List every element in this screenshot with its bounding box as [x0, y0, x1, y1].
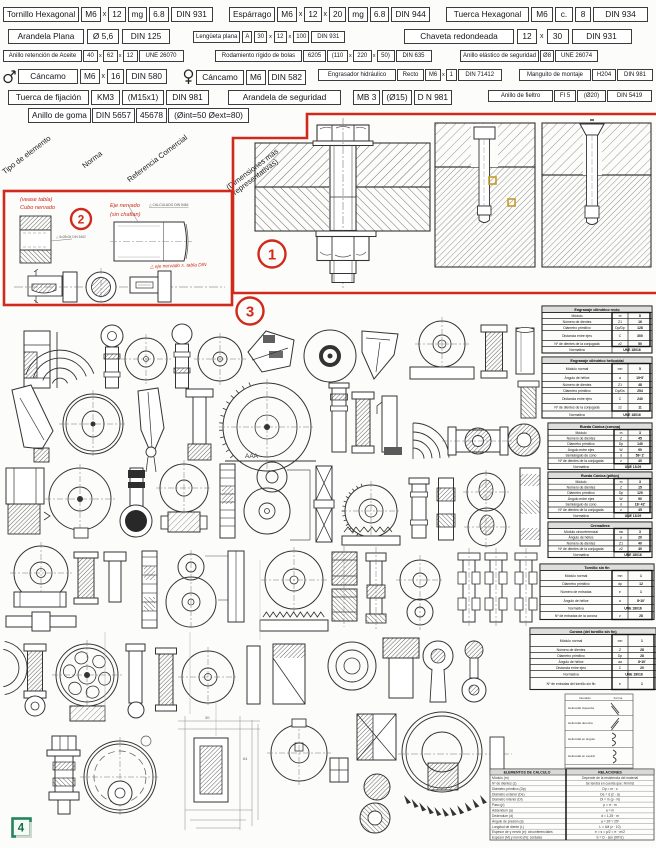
svg-text:Paso (p): Paso (p): [492, 803, 504, 807]
svg-text:(vease tabla): (vease tabla): [20, 197, 52, 203]
svg-text:Diámetro primitivo: Diámetro primitivo: [567, 491, 594, 495]
svg-text:50: 50: [638, 342, 642, 346]
svg-text:Número de dientes: Número de dientes: [563, 383, 592, 387]
svg-text:dp: dp: [618, 582, 622, 586]
svg-text:Z: Z: [620, 485, 622, 489]
svg-text:Semiángulo de cono: Semiángulo de cono: [566, 454, 597, 458]
svg-text:m: m: [620, 431, 623, 435]
svg-text:Normativa: Normativa: [569, 348, 585, 352]
svg-text:254: 254: [637, 389, 643, 393]
svg-text:Dp: Dp: [619, 491, 623, 495]
svg-text:Longitud de diente (L): Longitud de diente (L): [492, 825, 524, 829]
svg-text:Módulo: Módulo: [575, 480, 586, 484]
svg-text:Engranaje cilíndrico helicoida: Engranaje cilíndrico helicoidal: [570, 359, 623, 363]
svg-text:16: 16: [638, 320, 642, 324]
svg-text:1: 1: [641, 639, 643, 643]
svg-text:Engranaje cilíndrico recto: Engranaje cilíndrico recto: [574, 308, 620, 312]
svg-text:Normativa: Normativa: [569, 413, 585, 417]
svg-text:Número de dientes: Número de dientes: [557, 648, 586, 652]
svg-text:m: m: [619, 314, 622, 318]
svg-text:mc: mc: [619, 530, 624, 534]
svg-text:Normativa: Normativa: [573, 465, 589, 469]
svg-text:Módulo circunferencial: Módulo circunferencial: [564, 530, 598, 534]
svg-text:Dp = m · z: Dp = m · z: [602, 787, 618, 791]
svg-text:4: 4: [18, 823, 25, 835]
svg-text:45: 45: [638, 436, 642, 440]
svg-text:3: 3: [639, 530, 641, 534]
svg-text:z2: z2: [619, 547, 623, 551]
svg-text:Addendum (a): Addendum (a): [492, 809, 513, 813]
svg-text:Nº de entradas de la corona: Nº de entradas de la corona: [555, 614, 597, 618]
svg-text:Normativa: Normativa: [568, 606, 584, 610]
svg-text:Diámetro primitivo: Diámetro primitivo: [563, 326, 590, 330]
svg-text:18º 42': 18º 42': [635, 503, 646, 507]
svg-text:8º10': 8º10': [637, 599, 645, 603]
svg-text:Corona (del tornillo sin fin): Corona (del tornillo sin fin): [569, 630, 617, 634]
svg-text:1: 1: [640, 574, 642, 578]
svg-text:Nº de dientes de la conjugada: Nº de dientes de la conjugada: [558, 547, 603, 551]
svg-text:Z1: Z1: [618, 383, 622, 387]
svg-text:Z: Z: [620, 436, 622, 440]
svg-text:Helicoidal en ángulo: Helicoidal en ángulo: [568, 737, 595, 741]
svg-text:a: a: [619, 376, 621, 380]
svg-text:Ángulo de hélice: Ángulo de hélice: [563, 599, 588, 603]
svg-text:a: a: [619, 599, 621, 603]
svg-text:Eje nervado: Eje nervado: [110, 203, 140, 209]
svg-text:11: 11: [638, 406, 642, 410]
svg-text:d = 1,25 · m: d = 1,25 · m: [601, 814, 619, 818]
svg-text:Se tendrá en cuenta que: N/mm2: Se tendrá en cuenta que: N/mm2: [586, 781, 635, 785]
svg-text:z: z: [620, 459, 622, 463]
svg-text:45: 45: [638, 508, 642, 512]
svg-text:e: e: [619, 590, 621, 594]
svg-text:Nº de dientes de la conjugada: Nº de dientes de la conjugada: [554, 342, 599, 346]
svg-text:90: 90: [638, 497, 642, 501]
svg-text:Dentado: Dentado: [579, 696, 591, 700]
svg-text:Di = m (p · N): Di = m (p · N): [600, 798, 620, 802]
svg-text:Normativa: Normativa: [563, 672, 579, 676]
svg-text:Helicoidal izquierda: Helicoidal izquierda: [568, 706, 594, 710]
svg-text:8º10': 8º10': [638, 660, 646, 664]
svg-text:m: m: [620, 480, 623, 484]
svg-text:3: 3: [246, 303, 254, 320]
svg-text:mn: mn: [618, 574, 623, 578]
svg-text:UNE 18.09: UNE 18.09: [625, 465, 642, 469]
svg-text:d: d: [620, 503, 622, 507]
svg-text:Dp/Dp: Dp/Dp: [615, 326, 625, 330]
svg-text:Módulo normal: Módulo normal: [566, 367, 589, 371]
svg-text:Diámetro primitivo: Diámetro primitivo: [567, 442, 594, 446]
svg-text:140: 140: [637, 442, 643, 446]
svg-text:28: 28: [640, 654, 644, 658]
svg-text:28: 28: [639, 614, 643, 618]
svg-text:a = 20º / 25º: a = 20º / 25º: [601, 819, 620, 823]
svg-text:Diámetro primitivo: Diámetro primitivo: [563, 389, 590, 393]
svg-text:Ángulo de hélice: Ángulo de hélice: [564, 376, 589, 380]
svg-text:Distancia entre ejes: Distancia entre ejes: [562, 397, 592, 401]
svg-text:a = m: a = m: [606, 809, 615, 813]
svg-text:Nº de dientes de la conjugada: Nº de dientes de la conjugada: [558, 459, 603, 463]
svg-text:Diámetro primitivo (Dp): Diámetro primitivo (Dp): [492, 787, 526, 791]
svg-text:Cubo nervado: Cubo nervado: [20, 205, 55, 211]
svg-text:Nº de dientes (z): Nº de dientes (z): [492, 781, 516, 785]
svg-text:Z: Z: [619, 648, 621, 652]
svg-text:Ángulo entre ejes: Ángulo entre ejes: [568, 497, 595, 501]
svg-text:3: 3: [639, 480, 641, 484]
svg-text:Espesor (M) y nervio (N): cord: Espesor (M) y nervio (N): cordales: [492, 836, 543, 840]
svg-text:12: 12: [639, 582, 643, 586]
svg-text:Módulo normal: Módulo normal: [565, 574, 588, 578]
svg-text:Nº de entradas del tornillo si: Nº de entradas del tornillo sin fin: [547, 682, 596, 686]
svg-text:300: 300: [637, 334, 643, 338]
svg-text:48: 48: [638, 383, 642, 387]
svg-text:15: 15: [638, 485, 642, 489]
svg-text:1: 1: [268, 246, 276, 263]
svg-text:Número de dientes: Número de dientes: [567, 541, 596, 545]
svg-text:90: 90: [638, 448, 642, 452]
svg-text:z2: z2: [618, 406, 622, 410]
svg-text:5: 5: [639, 367, 641, 371]
svg-text:20: 20: [640, 666, 644, 670]
svg-text:(sin chaflan): (sin chaflan): [110, 212, 141, 218]
svg-text:Diámetro primitivo: Diámetro primitivo: [562, 582, 589, 586]
svg-text:Rueda Cónica (corona): Rueda Cónica (corona): [580, 425, 621, 429]
svg-text:Rueda Cónica (piñón): Rueda Cónica (piñón): [581, 474, 620, 478]
svg-text:mn: mn: [618, 367, 623, 371]
svg-text:△ eje nervado s. tabla DIN: △ eje nervado s. tabla DIN: [149, 262, 207, 270]
svg-text:30: 30: [205, 715, 210, 720]
svg-text:240: 240: [637, 397, 643, 401]
svg-text:64: 64: [243, 756, 248, 761]
svg-text:Depende de la resistencia del: Depende de la resistencia del material: [582, 776, 638, 780]
svg-text:19º5': 19º5': [636, 376, 644, 380]
svg-text:Módulo normal: Módulo normal: [560, 639, 583, 643]
svg-text:40: 40: [638, 547, 642, 551]
svg-text:20: 20: [638, 536, 642, 540]
svg-text:Nº de dientes de la conjugada: Nº de dientes de la conjugada: [554, 406, 599, 410]
svg-text:aa: aa: [618, 660, 622, 664]
svg-text:Semiángulo de cono: Semiángulo de cono: [566, 503, 597, 507]
svg-text:Z1: Z1: [619, 541, 623, 545]
svg-text:Diámetro exterior (De): Diámetro exterior (De): [492, 792, 525, 796]
svg-text:Ángulo de hélice: Ángulo de hélice: [568, 536, 593, 540]
svg-text:Número de dientes: Número de dientes: [563, 320, 592, 324]
svg-text:128: 128: [637, 326, 643, 330]
svg-text:28: 28: [640, 648, 644, 652]
svg-text:Número de dientes: Número de dientes: [567, 436, 596, 440]
svg-text:Módulo: Módulo: [575, 431, 586, 435]
svg-text:Dp/Ds: Dp/Ds: [615, 389, 625, 393]
svg-text:Número de dientes: Número de dientes: [567, 485, 596, 489]
svg-text:8: 8: [639, 314, 641, 318]
svg-text:△ 6x28x34 DIN 5462: △ 6x28x34 DIN 5462: [56, 235, 86, 239]
svg-text:Diámetro interior (Di): Diámetro interior (Di): [492, 798, 523, 802]
svg-text:S = D · sen (90º/z): S = D · sen (90º/z): [596, 836, 623, 840]
svg-text:Cremallera: Cremallera: [590, 524, 610, 528]
svg-text:UNE 18016: UNE 18016: [624, 606, 642, 610]
svg-text:UNE 18016: UNE 18016: [624, 553, 642, 557]
svg-text:Helicoidal en espiral: Helicoidal en espiral: [568, 754, 595, 758]
svg-text:Normativa: Normativa: [573, 553, 589, 557]
svg-text:e = s = p/2 = π · m/2: e = s = p/2 = π · m/2: [595, 830, 625, 834]
svg-text:UNE 18016: UNE 18016: [623, 413, 641, 417]
svg-text:40: 40: [638, 541, 642, 545]
svg-text:Forma: Forma: [614, 696, 623, 700]
svg-text:2: 2: [78, 212, 85, 226]
svg-text:z2: z2: [618, 342, 622, 346]
svg-text:Ángulo de hélice: Ángulo de hélice: [558, 660, 583, 664]
svg-text:De = d (2 · a): De = d (2 · a): [600, 792, 620, 796]
svg-text:d: d: [620, 454, 622, 458]
svg-text:z: z: [619, 614, 621, 618]
svg-text:Diámetro primitivo: Diámetro primitivo: [557, 654, 584, 658]
svg-text:Dedendum (d): Dedendum (d): [492, 814, 513, 818]
svg-text:Z1: Z1: [618, 320, 622, 324]
svg-text:3: 3: [639, 431, 641, 435]
svg-text:Ángulo entre ejes: Ángulo entre ejes: [568, 448, 595, 452]
svg-text:Tornillo sin fin: Tornillo sin fin: [584, 566, 610, 570]
svg-text:Distancia entre ejes: Distancia entre ejes: [556, 666, 586, 670]
svg-text:120: 120: [637, 491, 643, 495]
svg-text:Dp: Dp: [618, 654, 622, 658]
svg-text:59º 2': 59º 2': [636, 454, 645, 458]
svg-text:Espesor de y nervio (e): circu: Espesor de y nervio (e): circunferencial…: [492, 830, 553, 834]
svg-text:z: z: [620, 508, 622, 512]
svg-text:e: e: [619, 682, 621, 686]
svg-text:Número de entradas: Número de entradas: [561, 590, 592, 594]
svg-text:Ángulo de presión (a): Ángulo de presión (a): [492, 819, 524, 823]
svg-text:Nº de dientes de la conjugada: Nº de dientes de la conjugada: [558, 508, 603, 512]
svg-text:Normativa: Normativa: [573, 514, 589, 518]
svg-text:L = λM (z · 10): L = λM (z · 10): [599, 825, 620, 829]
svg-text:mn: mn: [618, 639, 623, 643]
svg-text:Módulo (m): Módulo (m): [492, 776, 509, 780]
svg-text:ELEMENTOS DE CALCULO: ELEMENTOS DE CALCULO: [504, 771, 551, 775]
svg-text:RELACIONES: RELACIONES: [598, 771, 622, 775]
svg-text:Dp: Dp: [619, 442, 623, 446]
svg-text:Módulo: Módulo: [571, 314, 582, 318]
svg-text:UNE 18016: UNE 18016: [623, 348, 641, 352]
svg-text:1: 1: [641, 682, 643, 686]
svg-text:UNE 18.09: UNE 18.09: [625, 514, 642, 518]
svg-text:AAA: AAA: [245, 453, 259, 460]
svg-text:Helicoidal derecha: Helicoidal derecha: [568, 721, 593, 725]
svg-text:40: 40: [638, 459, 642, 463]
svg-text:△ CALCULADO DIN 5464: △ CALCULADO DIN 5464: [149, 203, 189, 207]
svg-text:p = π · m: p = π · m: [603, 803, 617, 807]
svg-text:a: a: [620, 536, 622, 540]
svg-text:Distancia entre ejes: Distancia entre ejes: [562, 334, 592, 338]
svg-text:1: 1: [640, 590, 642, 594]
